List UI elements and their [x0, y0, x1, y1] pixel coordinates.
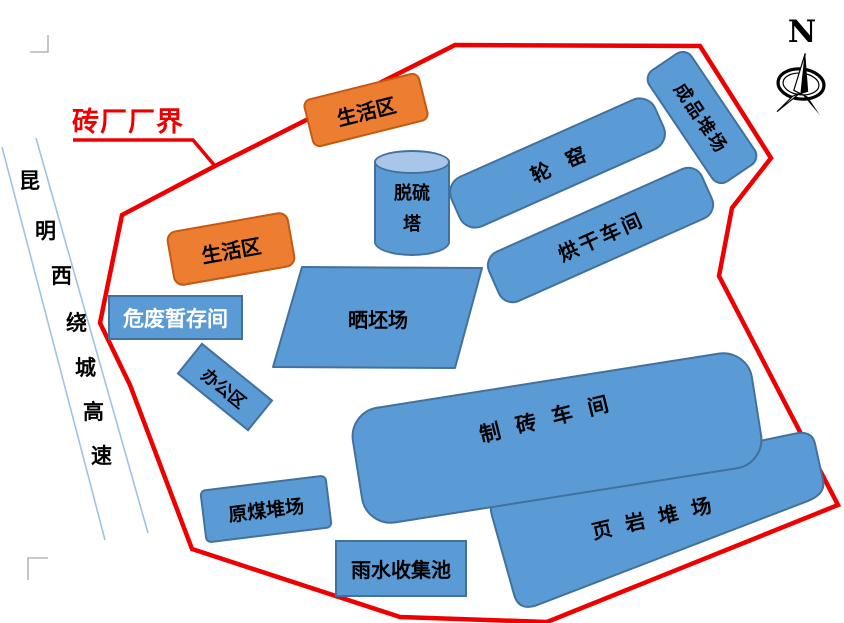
rainwater-pool: 雨水收集池 — [335, 540, 467, 597]
expressway-name-char: 城 — [75, 358, 96, 379]
desulfurization-tower-top — [374, 150, 450, 174]
brick-workshop-label: 制砖车间 — [476, 384, 627, 449]
expressway-name-char: 高 — [83, 402, 104, 423]
expressway-edge-line-left — [2, 147, 105, 540]
expressway-name-char: 昆 — [19, 171, 40, 192]
site-plan: 砖厂厂界 N 昆 明 西 绕 城 高 速 生活区 生活区 脱硫 塔 轮窑 烘干车… — [0, 0, 844, 623]
desulfurization-tower-label-line1: 脱硫 — [394, 178, 430, 210]
desulfurization-tower: 脱硫 塔 — [374, 150, 450, 256]
page-corner-mark-bottom-left — [28, 558, 48, 580]
expressway-name-char: 速 — [91, 446, 112, 467]
desulfurization-tower-body: 脱硫 塔 — [374, 162, 450, 256]
expressway-name-char: 西 — [51, 266, 72, 287]
boundary-label: 砖厂厂界 — [72, 100, 184, 139]
desulfurization-tower-label-line2: 塔 — [394, 209, 430, 241]
rainwater-pool-label: 雨水收集池 — [351, 554, 451, 583]
raw-coal-yard-label: 原煤堆场 — [227, 491, 306, 527]
living-area-label: 生活区 — [199, 230, 263, 269]
page-corner-mark-top-left — [30, 35, 48, 52]
hazardous-waste-storage: 危废暂存间 — [108, 295, 243, 340]
compass-rose-icon — [775, 51, 827, 116]
hazardous-waste-storage-label: 危废暂存间 — [123, 303, 228, 333]
expressway-name-char: 明 — [35, 221, 56, 242]
living-area-label: 生活区 — [333, 89, 398, 132]
expressway-name-char: 绕 — [66, 313, 87, 334]
north-label: N — [782, 14, 822, 50]
brick-drying-field-label: 晒坯场 — [313, 303, 443, 333]
boundary-label-leader-line — [73, 140, 215, 166]
